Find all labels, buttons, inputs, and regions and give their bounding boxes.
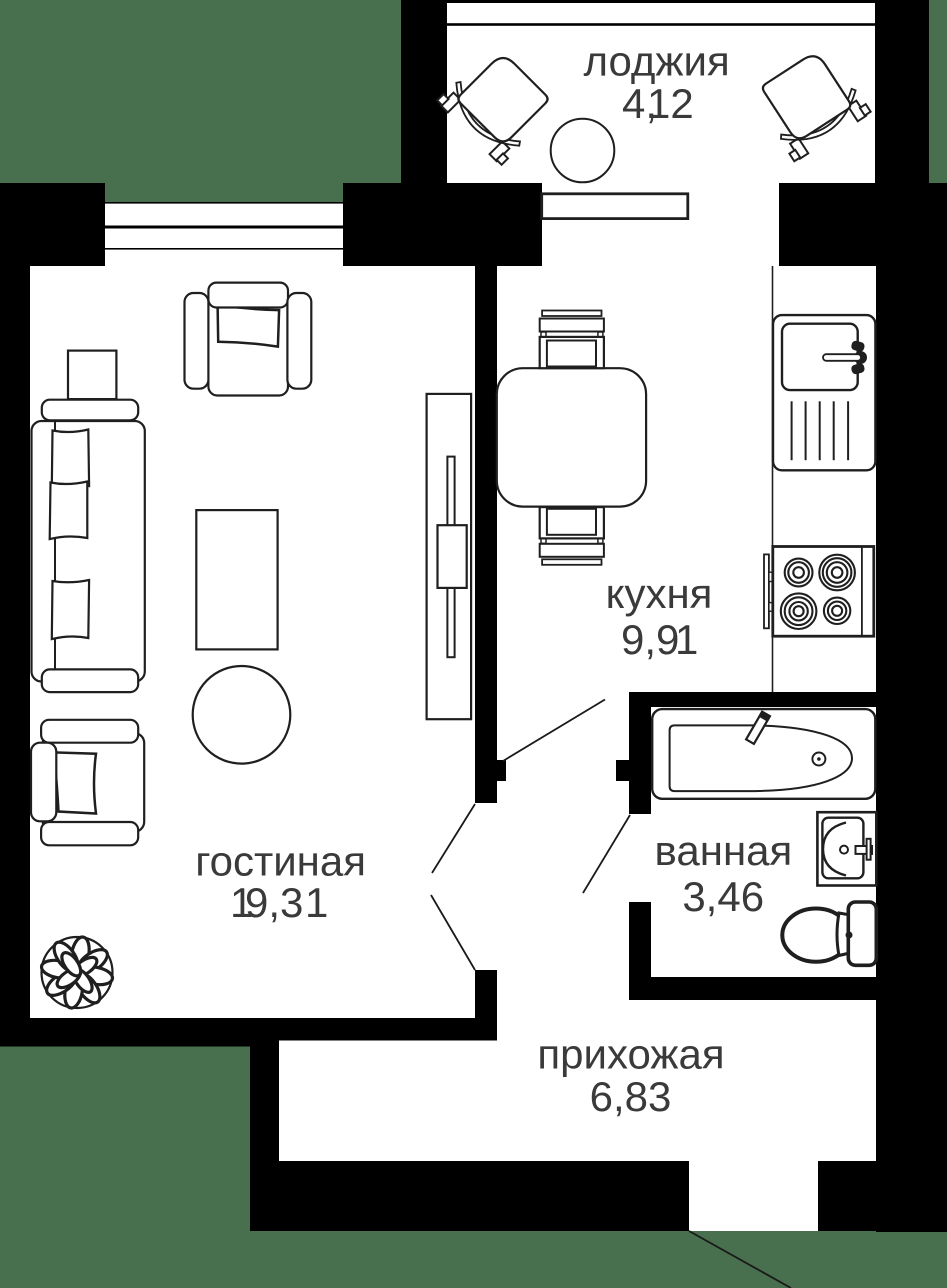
svg-text:6,83: 6,83: [590, 1073, 672, 1120]
svg-text:3,46: 3,46: [682, 873, 764, 920]
svg-text:9,3: 9,3: [245, 879, 303, 926]
svg-text:лоджия: лоджия: [583, 38, 729, 85]
svg-text:кухня: кухня: [606, 570, 713, 617]
svg-text:1: 1: [305, 879, 328, 926]
svg-text:гостиная: гостиная: [195, 837, 366, 884]
svg-text:9,9: 9,9: [621, 616, 679, 663]
svg-text:1: 1: [675, 616, 698, 663]
svg-text:прихожая: прихожая: [537, 1030, 724, 1077]
svg-text:12: 12: [647, 80, 694, 127]
svg-text:ванная: ванная: [655, 827, 793, 874]
